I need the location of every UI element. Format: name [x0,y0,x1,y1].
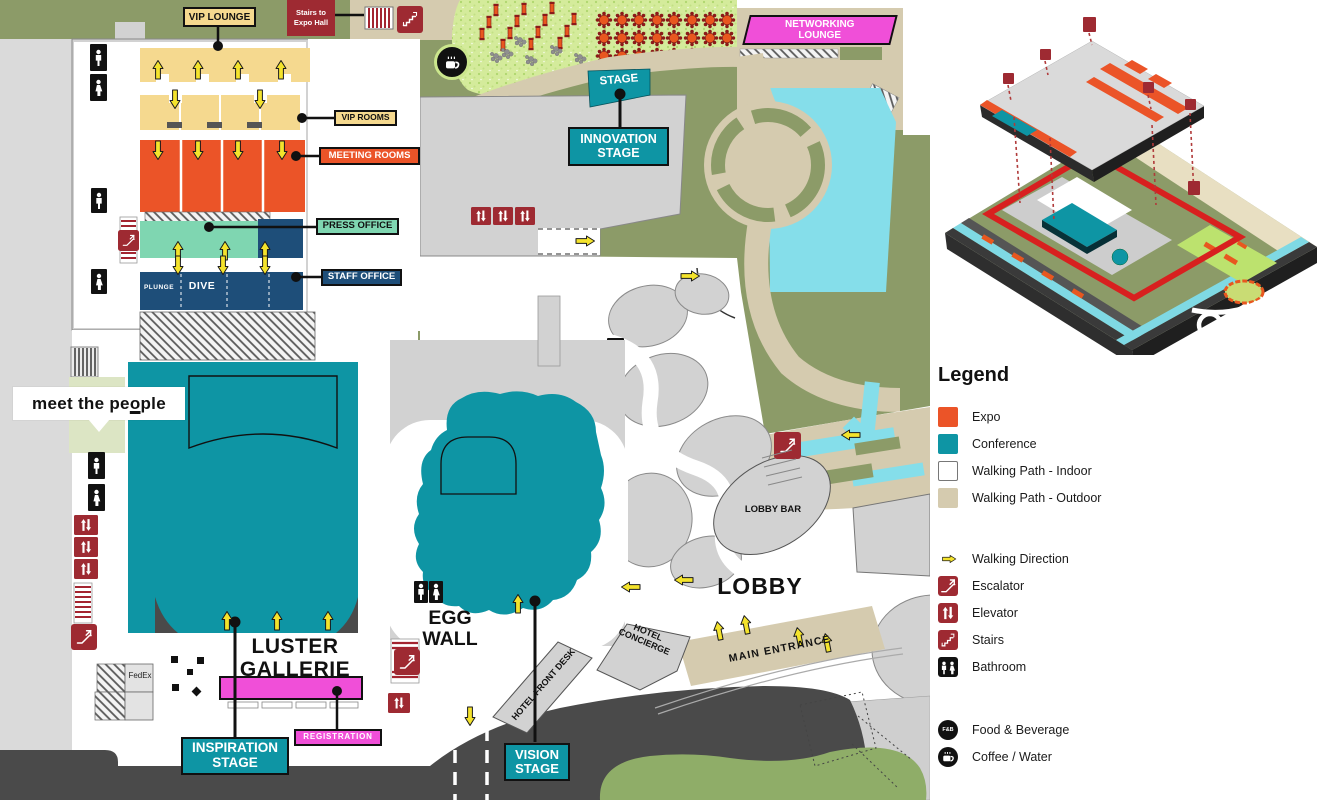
label-fedex: FedEx [126,672,154,681]
legend-label: Walking Direction [972,552,1069,566]
elevator-icon [938,603,958,623]
legend-item-walking-indoor: Walking Path - Indoor [938,457,1328,484]
expo-swatch [938,407,958,427]
food-beverage-icon: F&B [938,720,958,740]
coffee-water-icon [938,747,958,767]
vip-rooms [140,95,300,130]
legend-item-elevator: Elevator [938,599,1328,626]
label-innovation-stage: INNOVATION STAGE [568,127,669,166]
label-networking-lounge: NETWORKING LOUNGE [742,15,897,45]
label-egg-wall: EGG WALL [412,608,488,650]
legend-item-bathroom: Bathroom [938,653,1328,680]
label-vision-stage: VISION STAGE [504,743,570,781]
escalator-icon [938,576,958,596]
label-press-office: PRESS OFFICE [316,218,399,235]
label-lobby-bar: LOBBY BAR [734,505,812,515]
label-registration: REGISTRATION [294,729,382,746]
brand-text: meet the pe [32,394,130,414]
walking-indoor-swatch [938,461,958,481]
legend-title: Legend [938,364,1328,387]
legend-item-walking-direction: Walking Direction [938,545,1328,572]
conference-swatch [938,434,958,454]
label-dive: DIVE [182,281,222,292]
legend-item-expo: Expo [938,403,1328,430]
label-lobby: LOBBY [700,574,820,599]
coffee-icon-map [436,46,469,79]
legend-label: Walking Path - Outdoor [972,491,1101,505]
elevator-bank [471,207,535,225]
label-vip-lounge: VIP LOUNGE [183,7,256,27]
brand-o: o [130,394,141,414]
event-map-page: VIP LOUNGE Stairs to Expo Hall VIP ROOMS… [0,0,1340,800]
label-vip-rooms: VIP ROOMS [334,110,397,126]
side-panel: Legend Expo Conference Walking Path - In… [930,0,1340,800]
label-meeting-rooms: MEETING ROOMS [319,147,420,165]
isometric-overview [942,5,1332,355]
legend-item-conference: Conference [938,430,1328,457]
legend-item-coffee-water: Coffee / Water [938,743,1328,770]
label-luster-gallerie: LUSTER GALLERIE [212,636,378,681]
label-plunge: PLUNGE [140,284,178,291]
label-staff-office: STAFF OFFICE [321,269,402,286]
walking-direction-arrow [938,552,960,566]
legend-item-walking-outdoor: Walking Path - Outdoor [938,484,1328,511]
legend-label: Bathroom [972,660,1026,674]
stairs-icon [938,630,958,650]
walking-outdoor-swatch [938,488,958,508]
legend-label: Conference [972,437,1037,451]
legend-item-escalator: Escalator [938,572,1328,599]
legend-label: Walking Path - Indoor [972,464,1092,478]
label-inspiration-stage: INSPIRATION STAGE [181,737,289,775]
legend-label: Expo [972,410,1001,424]
legend-label: Coffee / Water [972,750,1052,764]
brand-logo: meet the people [13,387,185,420]
bathroom-icon [938,657,958,677]
brand-text-tail: ple [141,394,166,414]
legend: Legend Expo Conference Walking Path - In… [938,364,1328,770]
legend-label: Food & Beverage [972,723,1069,737]
legend-item-food-beverage: F&B Food & Beverage [938,716,1328,743]
legend-item-stairs: Stairs [938,626,1328,653]
floor-plan: VIP LOUNGE Stairs to Expo Hall VIP ROOMS… [0,0,930,800]
brand-pointer [88,419,110,432]
legend-label: Escalator [972,579,1024,593]
legend-label: Stairs [972,633,1004,647]
legend-label: Elevator [972,606,1018,620]
label-stairs-to-expo-hall: Stairs to Expo Hall [287,0,335,36]
networking-lounge-text: NETWORKING LOUNGE [785,19,854,41]
